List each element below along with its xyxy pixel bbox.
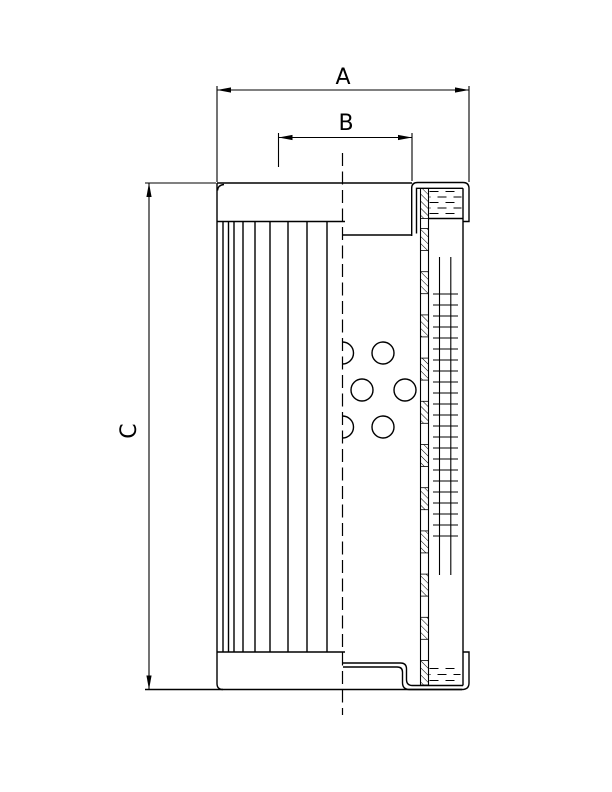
gasket-seals: [430, 192, 462, 681]
core-holes: [343, 342, 417, 438]
drawing-sheet: A B C: [0, 0, 612, 792]
dimension-b-label: B: [338, 111, 353, 136]
core-tube: [421, 188, 429, 685]
dimension-a-label: A: [335, 65, 350, 90]
dimension-c-label: C: [117, 423, 142, 438]
dimension-b: B: [279, 111, 413, 181]
dimension-c: C: [117, 183, 216, 690]
support-mesh: [433, 257, 458, 575]
drawing-svg: A B C: [0, 0, 612, 792]
pleated-media: [223, 222, 327, 653]
